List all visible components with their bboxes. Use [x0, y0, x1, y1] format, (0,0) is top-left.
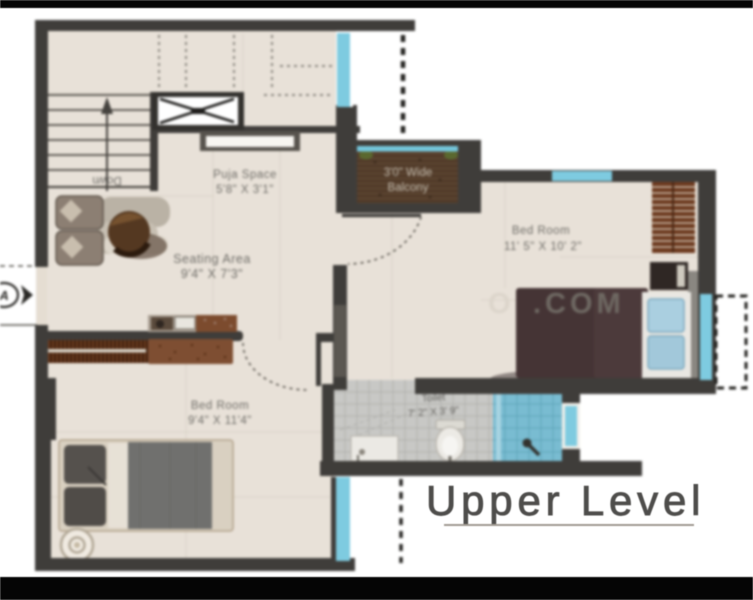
svg-text:Upper Level: Upper Level — [426, 477, 705, 524]
